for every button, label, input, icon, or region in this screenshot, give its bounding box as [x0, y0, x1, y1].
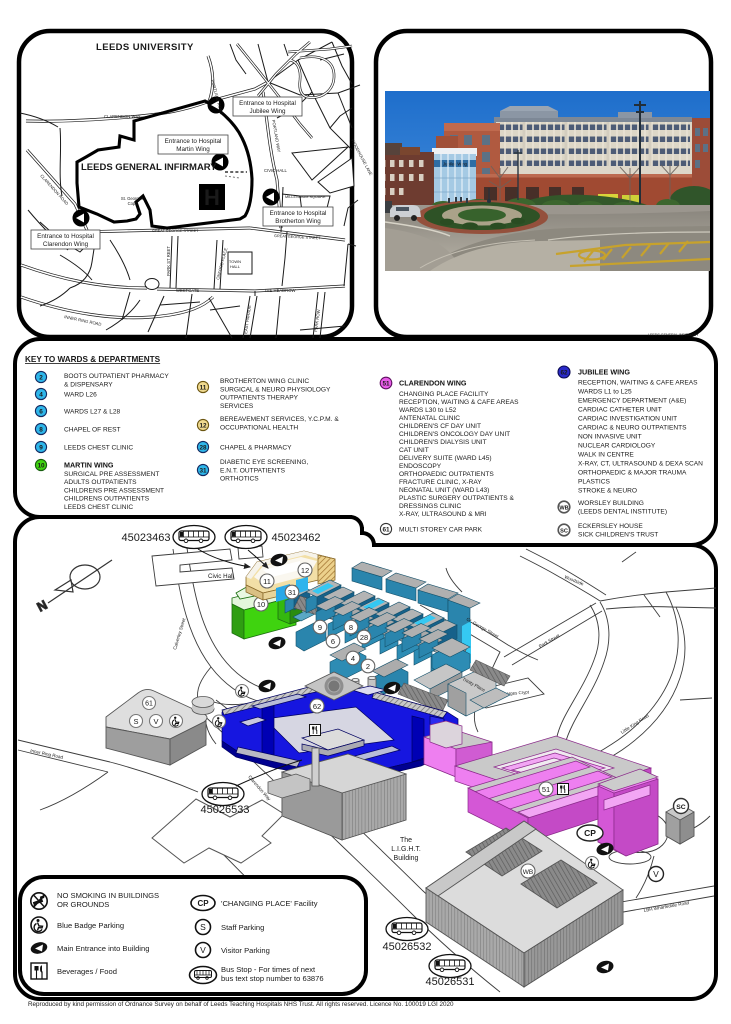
- svg-text:MARTIN WING: MARTIN WING: [64, 461, 114, 470]
- svg-text:CARDIAC CATHETER UNIT: CARDIAC CATHETER UNIT: [578, 407, 662, 414]
- svg-text:CP: CP: [584, 828, 596, 838]
- svg-text:S: S: [133, 717, 138, 726]
- svg-text:31: 31: [288, 588, 296, 597]
- svg-text:GREAT GEORGE STREET: GREAT GEORGE STREET: [152, 229, 199, 233]
- svg-text:BEREAVEMENT SERVICES, Y.C.P.M.: BEREAVEMENT SERVICES, Y.C.P.M. &: [220, 416, 339, 423]
- svg-text:bus text stop number to 63876: bus text stop number to 63876: [221, 974, 324, 983]
- svg-text:MULTI STOREY CAR PARK: MULTI STOREY CAR PARK: [399, 527, 483, 534]
- svg-text:H: H: [204, 185, 220, 210]
- svg-text:OR GROUNDS: OR GROUNDS: [57, 900, 109, 909]
- svg-text:ANTENATAL CLINIC: ANTENATAL CLINIC: [399, 415, 460, 422]
- svg-text:ORTHOPAEDIC OUTPATIENTS: ORTHOPAEDIC OUTPATIENTS: [399, 471, 494, 478]
- svg-text:E.N.T. OUTPATIENTS: E.N.T. OUTPATIENTS: [220, 467, 286, 474]
- svg-text:Staff Parking: Staff Parking: [221, 923, 264, 932]
- svg-text:Entrance to Hospital: Entrance to Hospital: [165, 138, 222, 145]
- svg-text:CHILDREN'S DIALYSIS UNIT: CHILDREN'S DIALYSIS UNIT: [399, 439, 487, 446]
- svg-text:45023462: 45023462: [272, 532, 321, 544]
- svg-text:DRESSINGS CLINIC: DRESSINGS CLINIC: [399, 503, 462, 510]
- svg-text:CHAPEL OF REST: CHAPEL OF REST: [64, 427, 121, 434]
- svg-text:OCCUPATIONAL HEALTH: OCCUPATIONAL HEALTH: [220, 424, 298, 431]
- svg-text:11: 11: [200, 385, 207, 392]
- svg-text:OUTPATIENTS THERAPY: OUTPATIENTS THERAPY: [220, 395, 299, 402]
- svg-text:LEEDS GENERAL INFIRMARY: LEEDS GENERAL INFIRMARY: [81, 162, 217, 173]
- svg-text:L.I.G.H.T.: L.I.G.H.T.: [391, 846, 421, 853]
- svg-text:CLARENDON WAY: CLARENDON WAY: [104, 114, 141, 119]
- svg-text:SICK CHILDREN'S TRUST: SICK CHILDREN'S TRUST: [578, 531, 658, 538]
- svg-text:WARDS L27 & L28: WARDS L27 & L28: [64, 409, 121, 416]
- svg-text:Clarendon Wing: Clarendon Wing: [43, 241, 89, 248]
- svg-text:ADULTS OUTPATIENTS: ADULTS OUTPATIENTS: [64, 479, 137, 486]
- svg-text:62: 62: [560, 370, 568, 377]
- svg-text:CHILDRENS OUTPATIENTS: CHILDRENS OUTPATIENTS: [64, 496, 150, 503]
- svg-text:V: V: [653, 869, 659, 879]
- svg-text:CHILDREN'S CF DAY UNIT: CHILDREN'S CF DAY UNIT: [399, 423, 481, 430]
- svg-text:CIVIC HALL: CIVIC HALL: [264, 168, 287, 173]
- svg-text:2: 2: [366, 662, 370, 671]
- svg-text:CHANGING PLACE FACILITY: CHANGING PLACE FACILITY: [399, 391, 489, 398]
- svg-text:HALL: HALL: [230, 264, 241, 269]
- svg-text:SC: SC: [676, 804, 686, 811]
- svg-text:SC: SC: [560, 529, 568, 535]
- svg-text:Entrance to Hospital: Entrance to Hospital: [37, 233, 94, 240]
- svg-text:V: V: [200, 945, 206, 955]
- svg-text:WARDS L1 to L25: WARDS L1 to L25: [578, 389, 632, 396]
- svg-text:SURGICAL & NEURO PHYSIOLOGY: SURGICAL & NEURO PHYSIOLOGY: [220, 386, 331, 393]
- svg-text:STROKE & NEURO: STROKE & NEURO: [578, 488, 637, 495]
- svg-text:10: 10: [257, 600, 265, 609]
- svg-text:WB: WB: [559, 506, 568, 512]
- svg-text:Entrance to Hospital: Entrance to Hospital: [239, 100, 296, 107]
- svg-text:Copt: Copt: [128, 201, 138, 206]
- svg-text:MILLENNIUM SQUARE: MILLENNIUM SQUARE: [285, 195, 326, 199]
- svg-text:SURGICAL PRE ASSESSMENT: SURGICAL PRE ASSESSMENT: [64, 471, 159, 478]
- svg-text:61: 61: [382, 527, 390, 534]
- svg-text:Entrance to Hospital: Entrance to Hospital: [270, 210, 327, 217]
- svg-text:JUBILEE WING: JUBILEE WING: [578, 368, 630, 377]
- svg-text:DELIVERY SUITE (WARD L45): DELIVERY SUITE (WARD L45): [399, 455, 492, 462]
- svg-text:FRACTURE CLINIC, X-RAY: FRACTURE CLINIC, X-RAY: [399, 479, 482, 486]
- svg-text:Civic Hall: Civic Hall: [208, 573, 234, 580]
- svg-text:2: 2: [39, 375, 43, 382]
- svg-text:ENDOSCOPY: ENDOSCOPY: [399, 463, 442, 470]
- svg-text:CHAPEL & PHARMACY: CHAPEL & PHARMACY: [220, 445, 292, 452]
- svg-text:WB: WB: [523, 869, 533, 876]
- svg-text:6: 6: [39, 409, 43, 416]
- svg-text:PLASTIC SURGERY OUTPATIENTS &: PLASTIC SURGERY OUTPATIENTS &: [399, 495, 515, 502]
- svg-text:61: 61: [145, 701, 153, 708]
- svg-text:V: V: [153, 717, 158, 726]
- svg-text:ECKERSLEY HOUSE: ECKERSLEY HOUSE: [578, 523, 643, 530]
- svg-text:4: 4: [351, 654, 355, 663]
- svg-text:(LEEDS DENTAL INSTITUTE): (LEEDS DENTAL INSTITUTE): [578, 508, 667, 515]
- svg-text:31: 31: [199, 468, 207, 475]
- svg-text:S: S: [200, 922, 206, 932]
- svg-text:NON INVASIVE UNIT: NON INVASIVE UNIT: [578, 434, 642, 441]
- svg-text:ORTHOTICS: ORTHOTICS: [220, 476, 259, 483]
- svg-text:WARDS L30 to L52: WARDS L30 to L52: [399, 407, 457, 414]
- svg-text:PARK ST REET: PARK ST REET: [166, 246, 171, 276]
- svg-text:RECEPTION, WAITING & CAFE AREA: RECEPTION, WAITING & CAFE AREAS: [578, 380, 698, 387]
- svg-text:45026532: 45026532: [383, 941, 432, 953]
- svg-text:28: 28: [360, 633, 368, 642]
- svg-text:4: 4: [39, 392, 43, 399]
- svg-text:Visitor Parking: Visitor Parking: [221, 946, 270, 955]
- svg-text:CHILDREN'S ONCOLOGY DAY UNIT: CHILDREN'S ONCOLOGY DAY UNIT: [399, 431, 510, 438]
- svg-text:Beverages / Food: Beverages / Food: [57, 967, 117, 976]
- svg-text:Reproduced by kind permission: Reproduced by kind permission of Ordnanc…: [28, 1001, 454, 1008]
- svg-text:Jubilee Wing: Jubilee Wing: [249, 108, 286, 115]
- svg-text:ORTHOPAEDIC & MAJOR TRAUMA: ORTHOPAEDIC & MAJOR TRAUMA: [578, 470, 687, 477]
- svg-text:45026531: 45026531: [426, 976, 475, 988]
- svg-text:NEONATAL UNIT (WARD L43): NEONATAL UNIT (WARD L43): [399, 487, 489, 494]
- svg-text:Main Entrance into Building: Main Entrance into Building: [57, 944, 149, 953]
- svg-text:EMERGENCY DEPARTMENT (A&E): EMERGENCY DEPARTMENT (A&E): [578, 398, 686, 405]
- svg-text:CARDIAC INVESTIGATION UNIT: CARDIAC INVESTIGATION UNIT: [578, 416, 677, 423]
- svg-text:THE HEADROW: THE HEADROW: [264, 288, 295, 293]
- svg-text:45023463: 45023463: [122, 532, 171, 544]
- svg-text:LEEDS CHEST CLINIC: LEEDS CHEST CLINIC: [64, 445, 133, 452]
- svg-text:Bus Stop - For times of next: Bus Stop - For times of next: [221, 965, 316, 974]
- svg-text:8: 8: [349, 623, 353, 632]
- svg-text:NO SMOKING IN BUILDINGS: NO SMOKING IN BUILDINGS: [57, 891, 159, 900]
- svg-text:10: 10: [37, 463, 45, 470]
- svg-text:6: 6: [331, 637, 335, 646]
- svg-text:SERVICES: SERVICES: [220, 403, 254, 410]
- svg-text:X-RAY, ULTRASOUND & MRI: X-RAY, ULTRASOUND & MRI: [399, 511, 487, 518]
- svg-text:NUCLEAR CARDIOLOGY: NUCLEAR CARDIOLOGY: [578, 443, 656, 450]
- svg-text:Blue Badge Parking: Blue Badge Parking: [57, 921, 124, 930]
- svg-text:WARD L26: WARD L26: [64, 392, 97, 399]
- svg-text:CARDIAC & NEURO OUTPATIENTS: CARDIAC & NEURO OUTPATIENTS: [578, 425, 687, 432]
- svg-text:9: 9: [318, 623, 322, 632]
- svg-text:Building: Building: [394, 855, 419, 862]
- svg-text:BROTHERTON WING CLINIC: BROTHERTON WING CLINIC: [220, 378, 309, 385]
- svg-text:WORSLEY BUILDING: WORSLEY BUILDING: [578, 500, 644, 507]
- svg-text:KEY TO WARDS & DEPARTMENTS: KEY TO WARDS & DEPARTMENTS: [25, 355, 161, 364]
- svg-text:51: 51: [542, 785, 550, 794]
- svg-text:45026533: 45026533: [201, 804, 250, 816]
- svg-text:51: 51: [382, 381, 390, 388]
- svg-text:8: 8: [39, 427, 43, 434]
- svg-text:LEEDS GENERAL INFIRMARY: LEEDS GENERAL INFIRMARY: [648, 333, 699, 337]
- svg-text:WESTGATE: WESTGATE: [176, 288, 199, 293]
- svg-text:Brotherton Wing: Brotherton Wing: [275, 218, 321, 225]
- svg-text:'CHANGING PLACE' Facility: 'CHANGING PLACE' Facility: [221, 899, 318, 908]
- svg-text:CHILDRENS PRE ASSESSMENT: CHILDRENS PRE ASSESSMENT: [64, 487, 164, 494]
- svg-text:CLARENDON WING: CLARENDON WING: [399, 379, 467, 388]
- svg-text:BOOTS OUTPATIENT PHARMACY: BOOTS OUTPATIENT PHARMACY: [64, 373, 169, 380]
- svg-text:Martin Wing: Martin Wing: [176, 146, 210, 153]
- svg-text:The: The: [400, 837, 412, 844]
- svg-text:62: 62: [313, 702, 321, 711]
- svg-text:X-RAY, CT, ULTRASOUND & DEXA S: X-RAY, CT, ULTRASOUND & DEXA SCAN: [578, 461, 703, 468]
- svg-text:& DISPENSARY: & DISPENSARY: [64, 381, 113, 388]
- svg-text:12: 12: [301, 566, 309, 575]
- svg-text:WALK IN CENTRE: WALK IN CENTRE: [578, 452, 634, 459]
- svg-text:DIABETIC EYE SCREENING,: DIABETIC EYE SCREENING,: [220, 459, 308, 466]
- svg-text:LEEDS UNIVERSITY: LEEDS UNIVERSITY: [96, 42, 194, 53]
- svg-text:12: 12: [199, 423, 207, 430]
- svg-text:LEEDS CHEST CLINIC: LEEDS CHEST CLINIC: [64, 504, 133, 511]
- svg-text:28: 28: [199, 445, 207, 452]
- svg-text:11: 11: [263, 577, 271, 586]
- svg-text:PLASTICS: PLASTICS: [578, 479, 610, 486]
- svg-text:9: 9: [39, 445, 43, 452]
- svg-text:CP: CP: [197, 899, 209, 908]
- svg-text:CAT UNIT: CAT UNIT: [399, 447, 429, 454]
- svg-text:RECEPTION, WAITING & CAFE AREA: RECEPTION, WAITING & CAFE AREAS: [399, 399, 519, 406]
